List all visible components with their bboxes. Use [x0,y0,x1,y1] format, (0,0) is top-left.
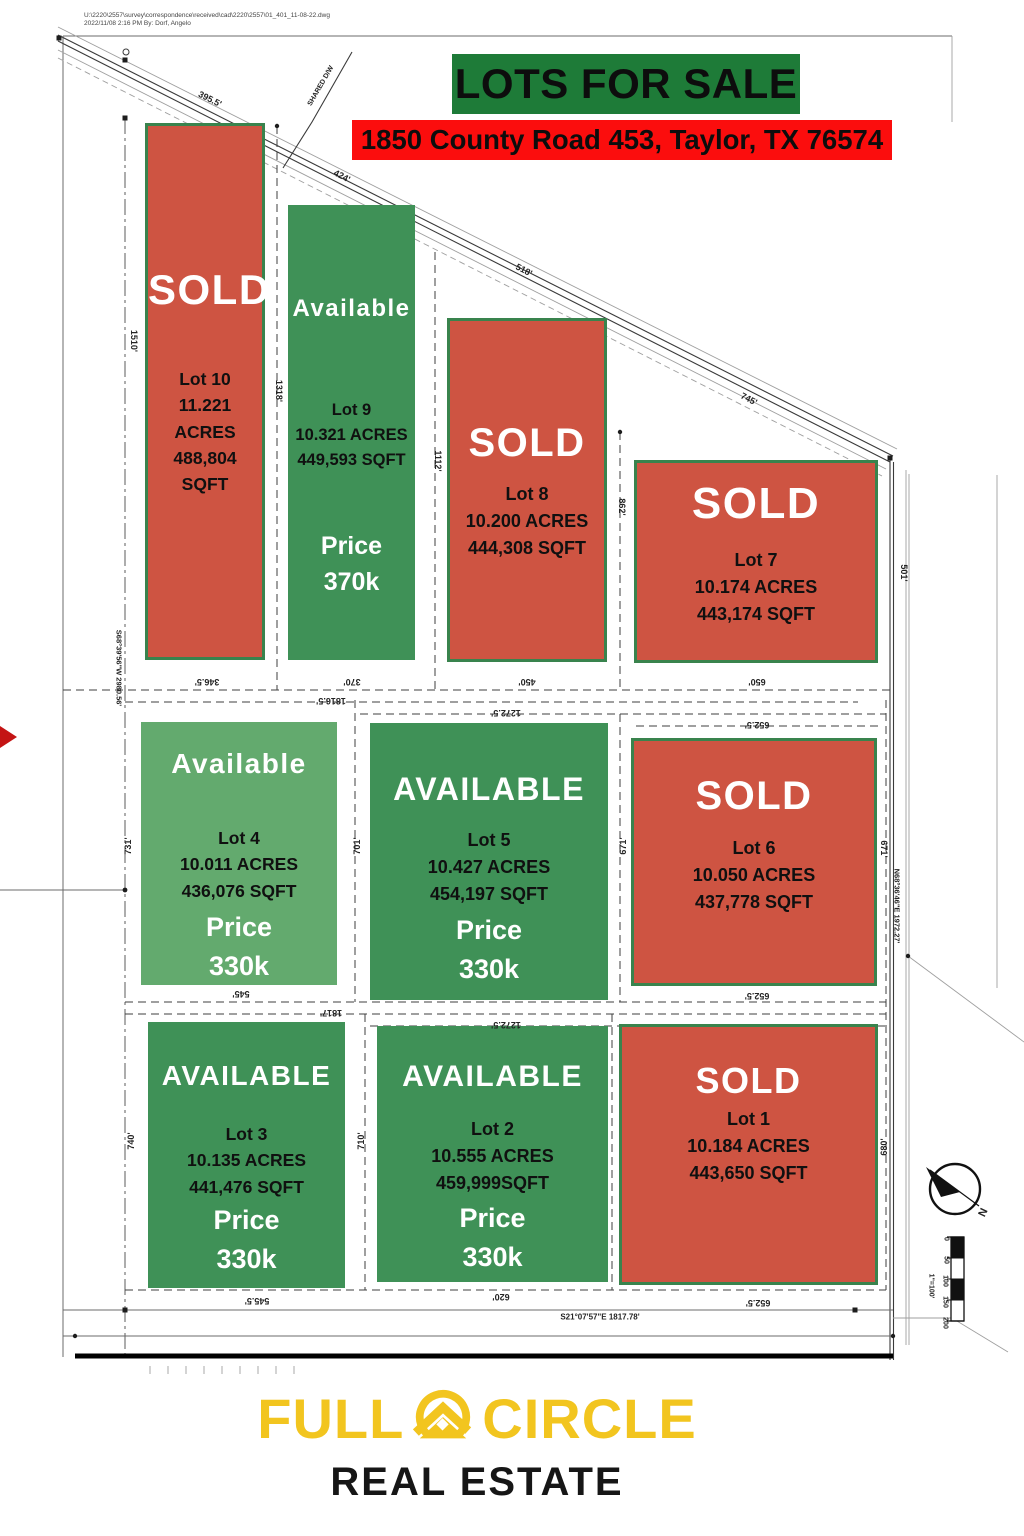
scale-tick-label: 200 [942,1317,949,1329]
lot-acres: 10.174 ACRES [637,574,875,601]
dimension-label: 545' [232,989,249,999]
scale-tick-label: 100 [942,1275,949,1287]
lot-sqft: 454,197 SQFT [370,881,608,908]
lot-details: Lot 910.321 ACRES449,593 SQFT [288,398,415,472]
dimension-label: 740' [126,1132,136,1149]
dimension-label: 652.5' [745,720,770,730]
dimension-label: 701' [352,837,362,854]
dimension-label: 346.5' [195,677,220,687]
lot-name: Lot 2 [377,1116,608,1143]
scale-ratio-label: 1"=100' [928,1274,935,1299]
lot-status-badge: AVAILABLE [148,1060,345,1092]
lot-price-value: 330k [377,1238,608,1277]
dimension-label: 671' [879,840,889,857]
lot-details: Lot 510.427 ACRES454,197 SQFT [370,827,608,908]
lot-sqft: 441,476 SQFT [148,1174,345,1200]
lot-parcel-9: AvailableLot 910.321 ACRES449,593 SQFTPr… [288,205,415,660]
cad-file-header: U:\2220\2557\survey\correspondence\recei… [84,12,330,28]
lot-details: Lot 1011.221 ACRES488,804 SQFT [148,366,262,497]
lot-price-label: Price [370,911,608,950]
lot-name: Lot 6 [634,835,874,862]
lot-parcel-10: SOLDLot 1011.221 ACRES488,804 SQFT [145,123,265,660]
lot-sqft: 443,650 SQFT [622,1160,875,1187]
lot-price: Price330k [377,1199,608,1277]
dimension-label: 545.5' [245,1296,270,1306]
dimension-label: 1817' [320,1008,342,1018]
lot-status-badge: SOLD [637,479,875,529]
lot-details: Lot 810.200 ACRES444,308 SQFT [450,481,604,562]
lot-price-value: 330k [141,947,337,986]
lot-details: Lot 210.555 ACRES459,999SQFT [377,1116,608,1197]
lot-status-badge: SOLD [148,266,262,314]
lot-price: Price330k [141,908,337,986]
dimension-label: 710' [356,1132,366,1149]
dimension-label: S68°39'56"W 2980.56' [115,630,124,706]
lot-sqft: 459,999SQFT [377,1170,608,1197]
dimension-label: 652.5' [746,1298,771,1308]
lot-details: Lot 310.135 ACRES441,476 SQFT [148,1121,345,1200]
property-address: 1850 County Road 453, Taylor, TX 76574 [361,124,883,156]
lot-name: Lot 10 [148,366,262,392]
lot-name: Lot 3 [148,1121,345,1147]
dimension-label: 1272.5' [491,708,521,718]
dimension-label: 652.5' [745,991,770,1001]
lot-price-label: Price [377,1199,608,1238]
lot-acres: 10.050 ACRES [634,862,874,889]
dimension-label: 1816.5' [316,696,346,706]
lot-details: Lot 710.174 ACRES443,174 SQFT [637,547,875,628]
dimension-label: 862' [617,498,627,515]
lot-sqft: 437,778 SQFT [634,889,874,916]
lot-details: Lot 110.184 ACRES443,650 SQFT [622,1106,875,1187]
lot-price-label: Price [288,528,415,564]
scale-bar [947,1237,964,1321]
logo-word-full: FULL [257,1386,404,1451]
lot-status-badge: SOLD [450,421,604,466]
lot-name: Lot 7 [637,547,875,574]
dimension-label: S21°07'57"E 1817.78' [560,1313,639,1322]
lot-acres: 10.200 ACRES [450,508,604,535]
lot-parcel-2: AVAILABLELot 210.555 ACRES459,999SQFTPri… [377,1026,608,1282]
lot-status-badge: AVAILABLE [377,1060,608,1094]
lot-sqft: 443,174 SQFT [637,601,875,628]
lot-status-badge: SOLD [622,1060,875,1102]
dimension-label: 671' [618,837,628,854]
lot-acres: 10.321 ACRES [288,423,415,448]
dimension-label: 731' [123,837,133,854]
lot-price-label: Price [141,908,337,947]
dimension-label: 680' [879,1138,889,1155]
lot-price-label: Price [148,1201,345,1240]
dimension-label: 650' [748,677,765,687]
lot-status-badge: Available [141,748,337,780]
north-arrow-compass [926,1164,980,1214]
title-banner: LOTS FOR SALE [452,54,800,114]
lot-name: Lot 5 [370,827,608,854]
dimension-label: 1510' [129,330,139,352]
lot-sqft: 444,308 SQFT [450,535,604,562]
location-arrow-icon [0,726,17,748]
lot-parcel-1: SOLDLot 110.184 ACRES443,650 SQFT [619,1024,878,1285]
lot-status-badge: AVAILABLE [370,771,608,808]
dimension-label: N68°36'46"E 1972.27' [893,869,902,944]
scale-tick-label: 150 [942,1296,949,1308]
dimension-label: 620' [492,1292,509,1302]
lot-sqft: 488,804 SQFT [148,445,262,498]
lot-name: Lot 8 [450,481,604,508]
dimension-label: 1272.5' [491,1020,521,1030]
lot-status-badge: SOLD [634,774,874,819]
lots-for-sale-flyer: U:\2220\2557\survey\correspondence\recei… [0,0,1024,1536]
cad-file-plot-info: 2022/11/08 2:16 PM By: Dorf, Angelo [84,20,330,28]
lot-acres: 10.427 ACRES [370,854,608,881]
cad-file-path: U:\2220\2557\survey\correspondence\recei… [84,12,330,20]
lot-price-value: 370k [288,564,415,600]
lot-acres: 10.184 ACRES [622,1133,875,1160]
lot-details: Lot 610.050 ACRES437,778 SQFT [634,835,874,916]
lot-name: Lot 9 [288,398,415,423]
lot-price-value: 330k [370,950,608,989]
logo-word-circle: CIRCLE [482,1386,696,1451]
dimension-label: 1318' [274,380,284,402]
logo-subtitle: REAL ESTATE [0,1460,954,1505]
lot-price: Price330k [370,911,608,989]
address-banner: 1850 County Road 453, Taylor, TX 76574 [352,120,892,160]
lot-details: Lot 410.011 ACRES436,076 SQFT [141,825,337,904]
lot-name: Lot 4 [141,825,337,851]
page-title: LOTS FOR SALE [455,60,798,108]
lot-acres: 11.221 ACRES [148,392,262,445]
dimension-label: 501' [899,564,909,581]
brokerage-logo: FULL CIRCLE [0,1386,954,1451]
lot-parcel-7: SOLDLot 710.174 ACRES443,174 SQFT [634,460,878,663]
lot-sqft: 449,593 SQFT [288,448,415,473]
lot-acres: 10.011 ACRES [141,851,337,877]
scale-tick-label: 50 [943,1256,950,1264]
lot-name: Lot 1 [622,1106,875,1133]
lot-price: Price330k [148,1201,345,1279]
lot-parcel-6: SOLDLot 610.050 ACRES437,778 SQFT [631,738,877,986]
lot-parcel-8: SOLDLot 810.200 ACRES444,308 SQFT [447,318,607,662]
full-circle-house-icon [412,1388,474,1450]
scale-tick-label: 0 [943,1237,950,1241]
dimension-label: 1112' [433,450,443,471]
dimension-label: 370' [343,677,360,687]
lot-parcel-3: AVAILABLELot 310.135 ACRES441,476 SQFTPr… [148,1022,345,1288]
lot-parcel-4: AvailableLot 410.011 ACRES436,076 SQFTPr… [141,722,337,985]
lot-acres: 10.135 ACRES [148,1147,345,1173]
lot-parcel-5: AVAILABLELot 510.427 ACRES454,197 SQFTPr… [370,723,608,1000]
lot-acres: 10.555 ACRES [377,1143,608,1170]
lot-price: Price370k [288,528,415,601]
lot-status-badge: Available [288,295,415,323]
lot-price-value: 330k [148,1240,345,1279]
lot-sqft: 436,076 SQFT [141,878,337,904]
dimension-label: 450' [518,677,535,687]
